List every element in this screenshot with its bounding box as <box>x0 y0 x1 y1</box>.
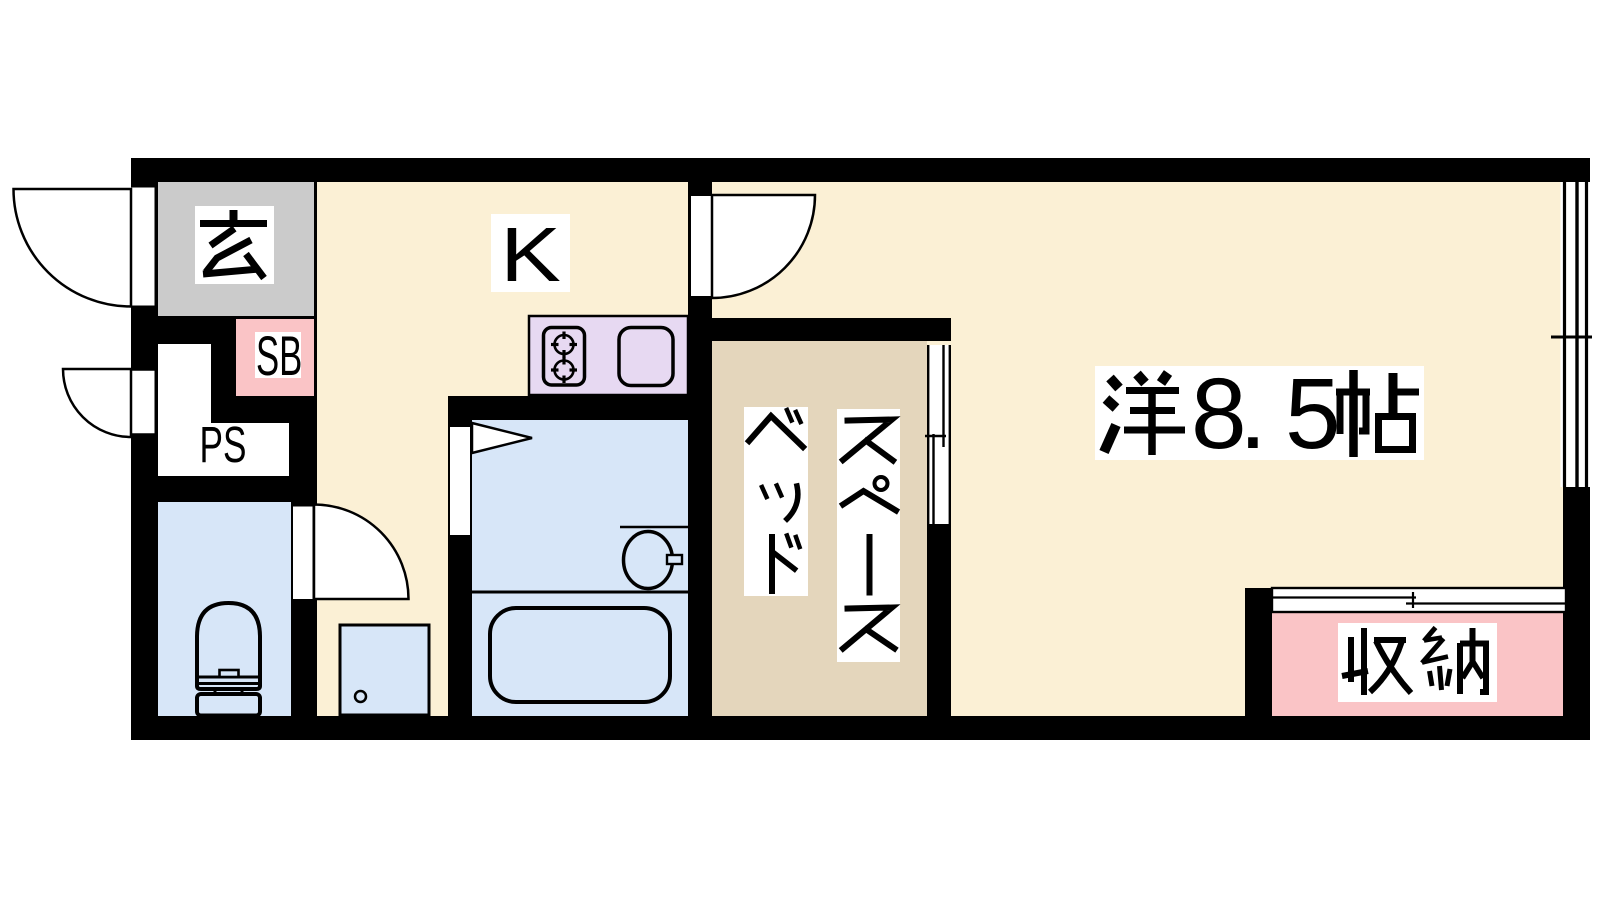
svg-text:.: . <box>1239 358 1267 470</box>
svg-text:SB: SB <box>256 325 302 388</box>
svg-text:PS: PS <box>199 417 246 474</box>
svg-text:K: K <box>500 212 561 298</box>
svg-text:5: 5 <box>1285 358 1341 470</box>
